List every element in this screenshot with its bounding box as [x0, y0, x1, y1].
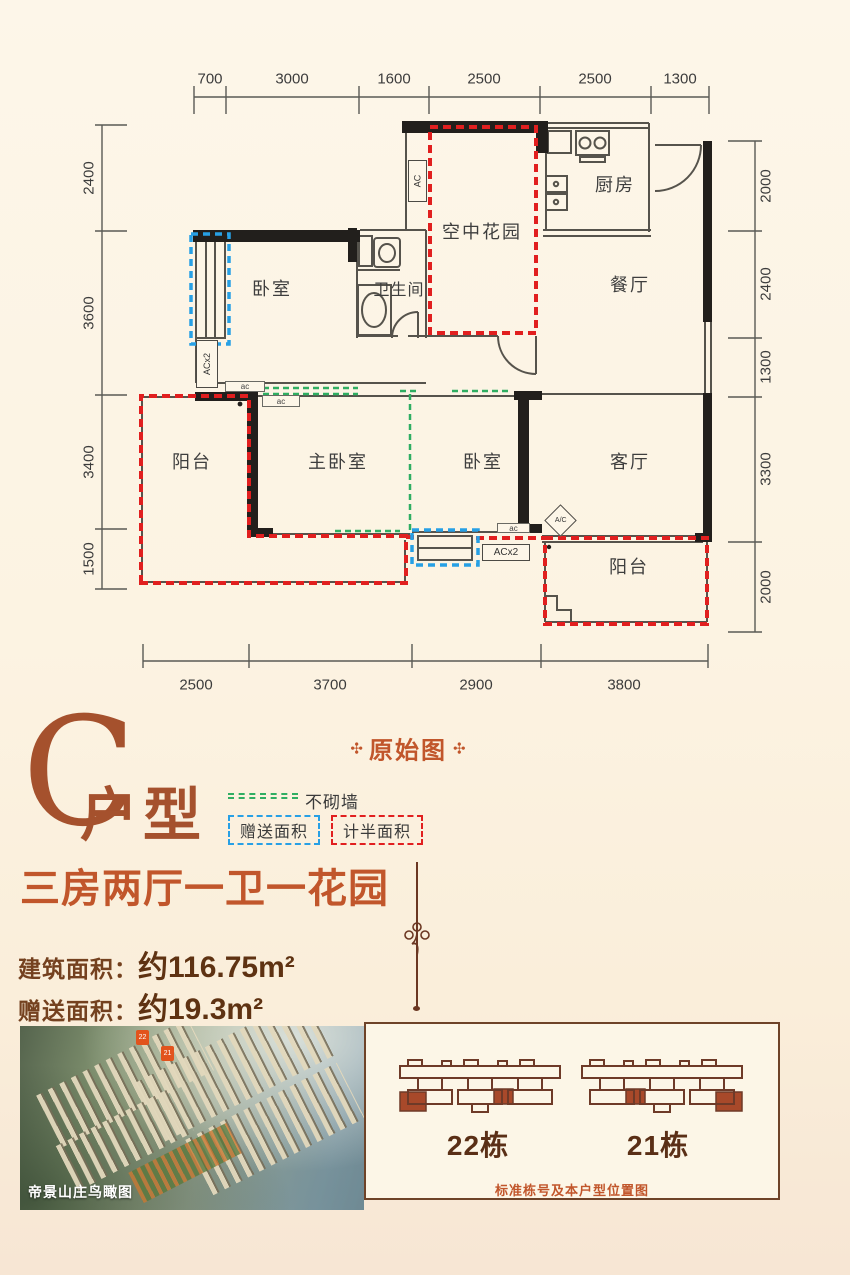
gift-area-line: 赠送面积： 约19.3m² — [18, 984, 263, 1028]
original-plan-badge: ✣ 原始图 ✣ — [350, 731, 465, 766]
ac-tag-2: ac — [262, 395, 300, 407]
dim-right-1: 2400 — [758, 267, 775, 300]
page: 700 3000 1600 2500 2500 1300 2400 3600 3… — [0, 0, 850, 1275]
gift-area-value: 约19.3m² — [138, 984, 263, 1028]
dim-top-5: 1300 — [663, 71, 696, 88]
dim-bottom-0: 2500 — [179, 677, 212, 694]
built-area-value: 约116.75m² — [138, 942, 295, 986]
room-label-dining: 餐厅 — [610, 271, 650, 297]
room-label-bedroom1: 卧室 — [252, 275, 292, 301]
photo-caption: 帝景山庄鸟瞰图 — [28, 1182, 133, 1202]
ac-box-sky-garden: AC — [408, 160, 427, 202]
badge-ornament-right-icon: ✣ — [453, 739, 466, 757]
floor-plan — [0, 0, 850, 710]
badge-ornament-left-icon: ✣ — [350, 739, 363, 757]
room-label-sky-garden: 空中花园 — [442, 218, 522, 244]
photo-marker-21: 21 — [161, 1046, 174, 1061]
dim-bottom-2: 2900 — [459, 677, 492, 694]
aerial-photo: 22 21 帝景山庄鸟瞰图 — [20, 1026, 364, 1210]
gift-area-label: 赠送面积： — [18, 992, 138, 1026]
divider-ornament-icon — [401, 918, 433, 956]
room-label-living: 客厅 — [610, 448, 650, 474]
building-21-label: 21栋 — [627, 1124, 689, 1164]
dim-bottom-1: 3700 — [313, 677, 346, 694]
room-label-balcony-right: 阳台 — [609, 553, 649, 579]
panel-caption: 标准栋号及本户型位置图 — [495, 1180, 649, 1199]
badge-text: 原始图 — [369, 731, 447, 766]
unit-type-label: 户型 — [80, 768, 206, 852]
building-22-label: 22栋 — [447, 1124, 509, 1164]
dim-right-3: 3300 — [758, 452, 775, 485]
built-area-line: 建筑面积： 约116.75m² — [18, 942, 295, 986]
dim-right-0: 2000 — [758, 169, 775, 202]
acx2-box-left: ACx2 — [196, 340, 218, 388]
room-label-master-bedroom: 主卧室 — [308, 448, 368, 474]
dim-left-1: 3600 — [81, 296, 98, 329]
room-label-bedroom2: 卧室 — [463, 448, 503, 474]
divider-end-dot — [413, 1006, 420, 1011]
ac-tag-3: ac — [497, 523, 530, 533]
dim-top-1: 3000 — [275, 71, 308, 88]
ac-tag-1: ac — [225, 381, 265, 392]
acx2-box-bottom: ACx2 — [482, 544, 530, 561]
dim-right-4: 2000 — [758, 570, 775, 603]
photo-marker-22: 22 — [136, 1030, 149, 1045]
room-label-kitchen: 厨房 — [595, 171, 635, 197]
dim-top-2: 1600 — [377, 71, 410, 88]
dim-left-0: 2400 — [81, 161, 98, 194]
building-21-footprint — [580, 1058, 744, 1118]
legend-gift-area: 赠送面积 — [228, 815, 320, 845]
acx2-box-left-label: ACx2 — [202, 353, 212, 375]
unit-subtitle: 三房两厅一卫一花园 — [20, 856, 389, 914]
dim-left-3: 1500 — [81, 542, 98, 575]
dim-top-0: 700 — [197, 71, 222, 88]
dim-right-2: 1300 — [758, 350, 775, 383]
ac-diamond-label: A/C — [555, 517, 567, 524]
legend-no-wall-sample — [228, 793, 298, 799]
legend-no-wall-label: 不砌墙 — [305, 788, 359, 813]
room-label-balcony-left: 阳台 — [172, 448, 212, 474]
dim-top-3: 2500 — [467, 71, 500, 88]
acx2-box-bottom-label: ACx2 — [494, 547, 518, 558]
built-area-label: 建筑面积： — [18, 950, 138, 984]
room-label-bathroom: 卫生间 — [373, 276, 424, 300]
legend-half-area: 计半面积 — [331, 815, 423, 845]
dim-bottom-3: 3800 — [607, 677, 640, 694]
building-22-footprint — [398, 1058, 562, 1118]
dim-top-4: 2500 — [578, 71, 611, 88]
ac-box-label: AC — [412, 175, 422, 188]
dim-left-2: 3400 — [81, 445, 98, 478]
